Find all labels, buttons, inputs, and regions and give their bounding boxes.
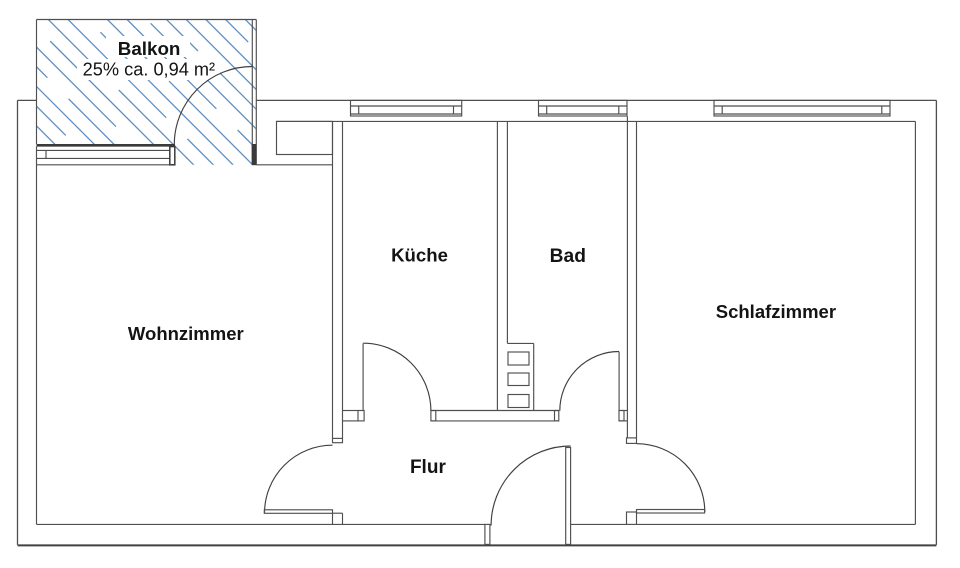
svg-text:25% ca. 0,94 m²: 25% ca. 0,94 m² [83,59,215,79]
svg-text:Wohnzimmer: Wohnzimmer [128,323,244,344]
svg-text:Bad: Bad [550,246,586,267]
svg-text:Balkon: Balkon [118,38,181,59]
svg-text:Küche: Küche [391,245,448,266]
svg-text:Schlafzimmer: Schlafzimmer [716,301,836,322]
svg-text:Flur: Flur [410,457,446,478]
